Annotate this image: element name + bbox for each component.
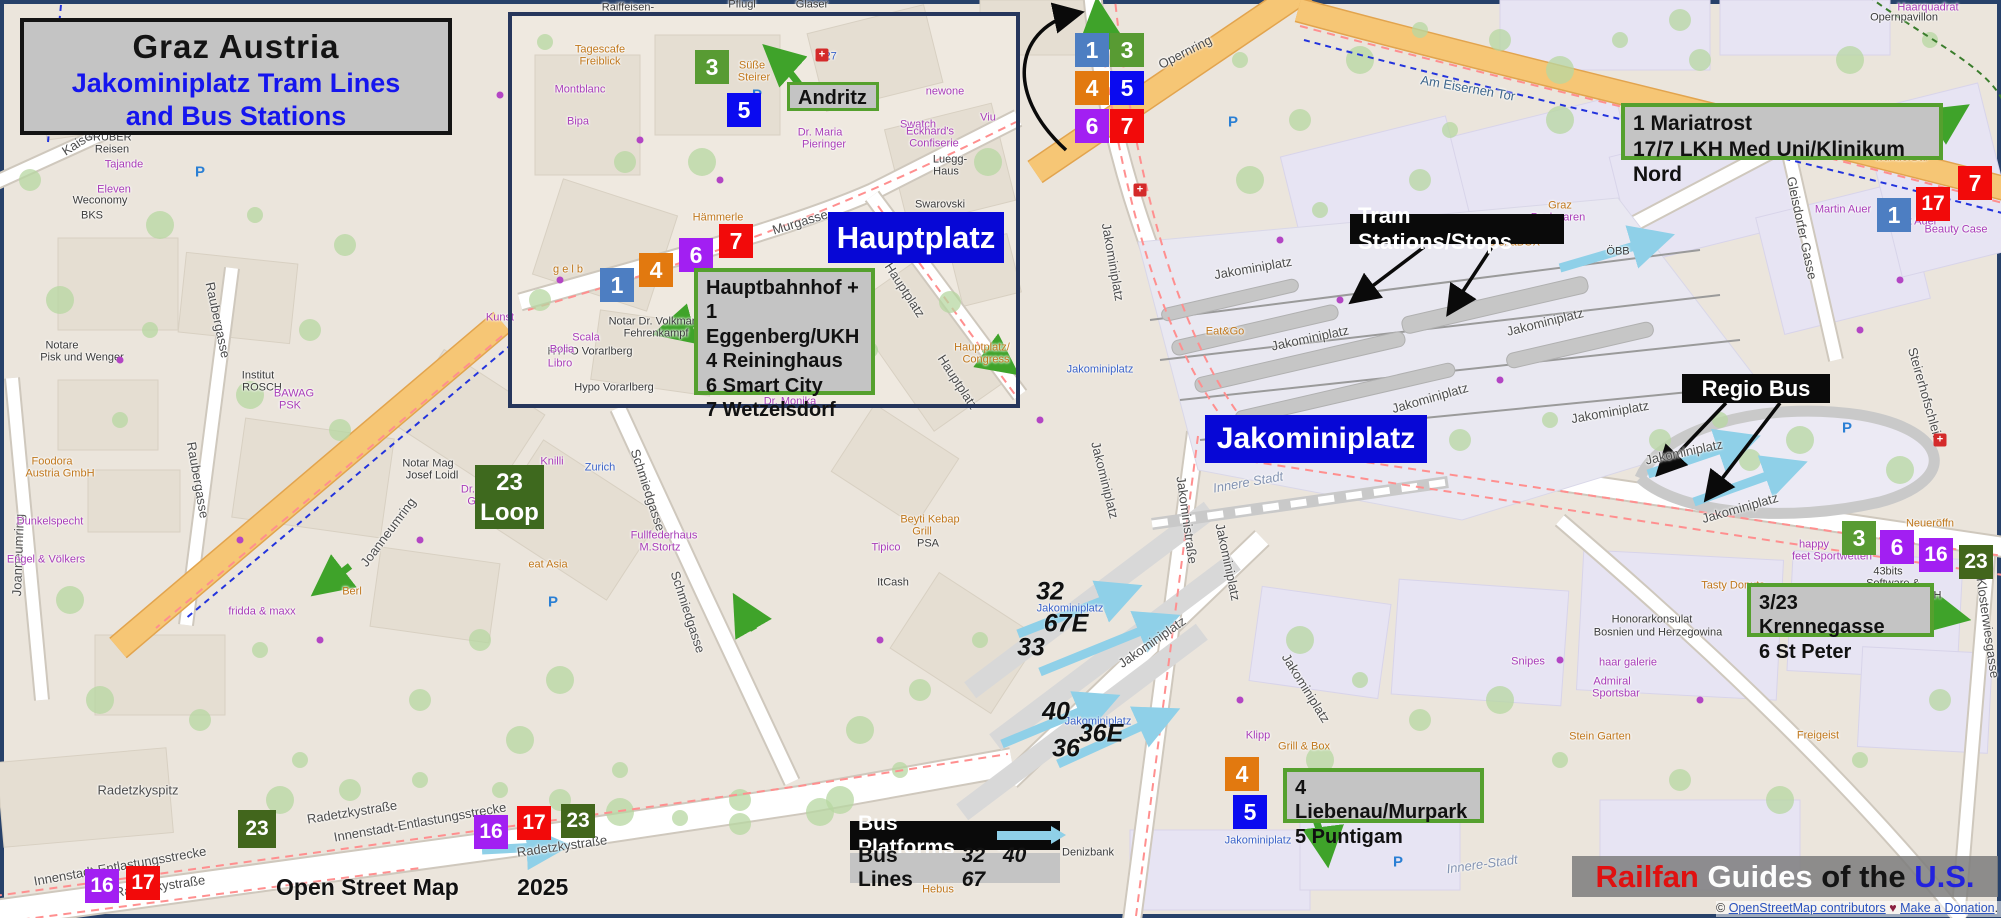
street-label: Congress [962,355,1009,366]
street-label: Luegg- [933,155,967,166]
copyright-symbol: © [1716,901,1729,915]
poi-icon [1237,697,1244,704]
poi-icon [1557,657,1564,664]
tram-line-badge-16: 16 [85,869,119,903]
street-label: Austria GmbH [25,469,94,480]
map-subtitle-1: Jakominiplatz Tram Lines [24,68,448,99]
mariatrost-info-box: 1 Mariatrost 17/7 LKH Med Uni/Klinikum N… [1621,103,1943,160]
street-label: Martin Auer [1815,205,1871,216]
street-label: Tipico [872,543,901,554]
street-label: Jakominiplatz [1225,836,1292,847]
tram-line-badge-1: 1 [1877,198,1911,232]
tram-line-badge-6: 6 [679,238,713,272]
street-label: Süße [739,61,765,72]
street-label: Honorarkonsulat [1612,615,1693,626]
tram-line-badge-3: 3 [1842,521,1876,555]
info-line: Hauptbahnhof + [706,276,863,300]
map-title-box: Graz Austria Jakominiplatz Tram Lines an… [20,18,452,135]
bus-line-number: 67E [1044,610,1088,639]
heart-icon: ♥ [1886,901,1900,915]
tram-line-badge-1: 1 [600,268,634,302]
poi-icon [637,137,644,144]
street-label: PSA [917,539,939,550]
bus-lines-numbers: 32 40 67 [962,844,1052,892]
street-label: Haus [933,167,959,178]
pharmacy-icon: + [816,49,829,62]
andritz-label: Andritz [787,82,879,111]
attribution-suffix: . W [1995,901,2001,915]
street-label: Beyti Kebap [900,515,959,526]
street-label: M.Stortz [640,543,681,554]
tram-line-badge-7: 7 [719,224,753,258]
street-label: Steirer [738,73,770,84]
osm-attribution: © OpenStreetMap contributors ♥ Make a Do… [1716,901,2001,917]
info-line: 3/23 Krennegasse [1759,591,1922,640]
street-label: Montblanc [555,85,606,96]
street-label: Josef Loidl [406,471,459,482]
parking-icon: P [1393,854,1403,871]
tram-line-badge-3: 3 [695,50,729,84]
street-label: g e l b [553,265,583,276]
info-line: 5 Puntigam [1295,825,1472,849]
hauptplatz-label: Hauptplatz [828,212,1004,263]
street-label: Swarovski [915,200,965,211]
street-label: Bolia [550,345,574,356]
street-label: newone [926,87,965,98]
street-label: Denizbank [1062,848,1114,859]
map-title: Graz Austria [24,28,448,66]
street-label: Fehrenkampf [624,329,689,340]
street-label: Freigeist [1797,731,1839,742]
bus-lines-text: Bus Lines [858,844,944,892]
street-label: Viu [980,113,996,124]
right-arrow-icon [997,831,1052,840]
poi-icon [237,537,244,544]
parking-icon: P [195,164,205,181]
osm-credit-year: 2025 [517,874,568,900]
street-label: Bosnien und Herzegowina [1594,628,1722,639]
street-label: Reisen [95,145,129,156]
donation-link[interactable]: Make a Donation [1900,901,1995,915]
street-label: Institut [242,371,274,382]
street-label: Raiffeisen- [602,3,654,14]
tram-line-badge-5: 5 [1110,71,1144,105]
poi-icon [417,537,424,544]
info-line: 4 Liebenau/Murpark [1295,776,1472,825]
jakominiplatz-label: Jakominiplatz [1205,415,1427,463]
street-label: Radetzkyspitz [98,784,179,797]
street-label: Stein Garten [1569,732,1631,743]
street-label: ÖBB [1606,247,1629,258]
railfan-guides-logo: Railfan Guides of the U.S. [1572,856,1998,897]
street-label: haar galerie [1599,658,1657,669]
ofthe-word: of the [1813,859,1906,895]
tram-line-badge-4: 4 [639,253,673,287]
info-line: 4 Reininghaus [706,349,863,373]
street-label: Dunkelspecht [17,517,84,528]
map-screenshot: OpernringAm Eisernen TorHaarquadratOpern… [0,0,2001,918]
pharmacy-icon: + [1134,184,1147,197]
tram-line-badge-5: 5 [727,93,761,127]
loop-word: Loop [475,498,544,528]
street-label: Snipes [1511,657,1545,668]
osm-contributors-link[interactable]: OpenStreetMap contributors [1729,901,1886,915]
street-label: Zurich [585,463,616,474]
hauptbahnhof-info-box: Hauptbahnhof + 1 Eggenberg/UKH 4 Reining… [694,268,875,395]
street-label: eat Asia [528,560,567,571]
poi-icon [1897,277,1904,284]
osm-credit-label: Open Street Map [276,874,459,900]
tram-line-badge-7: 7 [1110,109,1144,143]
street-label: Weconomy [73,196,128,207]
tram-line-badge-17: 17 [1916,187,1950,221]
poi-icon [877,637,884,644]
tram-line-badge-23: 23 [238,810,276,848]
street-label: happy [1799,540,1829,551]
street-label: Opernpavillon [1870,13,1938,24]
tram-line-badge-17: 17 [517,806,551,840]
map-subtitle-2: and Bus Stations [24,101,448,132]
street-label: BKS [81,211,103,222]
tram-line-badge-16: 16 [1919,538,1953,572]
krennegasse-info-box: 3/23 Krennegasse 6 St Peter [1747,583,1934,637]
street-label: Eckhard's [906,127,954,138]
street-label: Bipa [567,117,589,128]
pharmacy-icon: + [1934,434,1947,447]
street-label: PSK [279,401,301,412]
street-label: Jakominiplatz [1067,365,1134,376]
parking-icon: P [1228,114,1238,131]
poi-icon [1857,327,1864,334]
poi-icon [1497,377,1504,384]
liebenau-info-box: 4 Liebenau/Murpark 5 Puntigam [1283,768,1484,823]
street-label: Tajande [105,160,144,171]
railfan-word: Railfan [1596,859,1699,895]
tram-line-badge-3: 3 [1110,33,1144,67]
info-line: 6 Smart City [706,374,863,398]
tram-line-badge-5: 5 [1233,795,1267,829]
tram-line-badge-4: 4 [1225,757,1259,791]
street-label: BAWAG [274,389,314,400]
street-label: fridda & maxx [228,607,295,618]
tram-line-badge-4: 4 [1075,71,1109,105]
street-label: 43bits [1873,567,1902,578]
street-label: Confiserie [909,139,959,150]
street-label: Scala [572,333,600,344]
street-label: Dr. Maria [798,128,843,139]
street-label: Grill [912,527,932,538]
info-line: 17/7 LKH Med Uni/Klinikum Nord [1633,137,1931,188]
bus-line-number: 40 [1042,698,1070,727]
bus-lines-legend: Bus Lines 32 40 67 [850,853,1060,883]
tram-line-badge-1: 1 [1075,33,1109,67]
street-label: Pisk und Wenger [40,353,124,364]
bus-line-number: 36E [1079,720,1123,749]
info-line: 7 Wetzelsdorf [706,398,863,422]
street-label: Berl [342,587,362,598]
street-label: ItCash [877,578,909,589]
poi-icon [717,177,724,184]
poi-icon [317,637,324,644]
poi-icon [117,357,124,364]
street-label: Admiral [1593,677,1630,688]
street-label: Fullfederhaus [631,531,698,542]
street-label: Notar Dr. Volkmar [609,317,696,328]
street-label: Hauptplatz/ [954,343,1010,354]
tram-line-badge-6: 6 [1880,530,1914,564]
poi-icon [1337,297,1344,304]
street-label: Libro [548,359,572,370]
street-label: Sportsbar [1592,689,1640,700]
tram-line-badge-16: 16 [474,815,508,849]
street-label: Glaser [796,0,828,11]
street-label: Hypo Vorarlberg [574,383,654,394]
tram-line-badge-7: 7 [1958,166,1992,200]
street-label: Freiblick [580,57,621,68]
street-label: Pflugl [728,0,756,11]
street-label: Notar Mag [402,459,453,470]
street-label: Engel & Völkers [7,555,85,566]
bus-line-number: 32 [1036,578,1064,607]
info-line: 1 Mariatrost [1633,111,1931,137]
line-23-loop-label: 23 Loop [475,465,544,529]
street-label: Neueröffn [1906,519,1954,530]
osm-credit: Open Street Map 2025 [276,874,568,901]
poi-icon [1277,237,1284,244]
guides-word: Guides [1699,859,1813,895]
poi-icon [497,92,504,99]
us-word: U.S. [1906,859,1975,895]
info-line: 1 Eggenberg/UKH [706,300,863,349]
tram-stations-label: Tram Stations/Stops [1350,214,1564,244]
regio-bus-label: Regio Bus [1682,374,1830,403]
street-label: Hämmerle [693,213,744,224]
tram-line-badge-23: 23 [561,804,595,838]
poi-icon [557,277,564,284]
parking-icon: P [1842,420,1852,437]
tram-line-badge-23: 23 [1959,545,1993,579]
street-label: Notare [45,341,78,352]
street-label: Tagescafe [575,45,625,56]
street-label: Eat&Go [1206,327,1245,338]
info-line: 6 St Peter [1759,640,1922,664]
poi-icon [1697,697,1704,704]
street-label: Kunst [486,313,514,324]
loop-number: 23 [475,468,544,498]
street-label: Grill & Box [1278,742,1330,753]
street-label: Klipp [1246,731,1270,742]
street-label: Foodora [32,457,73,468]
bus-line-number: 36 [1052,735,1080,764]
poi-icon [1037,417,1044,424]
bus-line-number: 33 [1017,634,1045,663]
parking-icon: P [548,594,558,611]
tram-line-badge-6: 6 [1075,109,1109,143]
street-label: Pieringer [802,140,846,151]
tram-line-badge-17: 17 [126,866,160,900]
